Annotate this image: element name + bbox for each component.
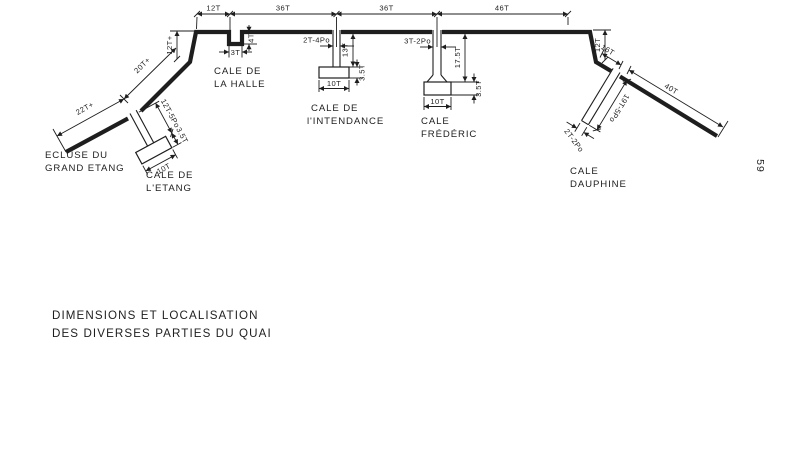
page-number: 59	[754, 159, 766, 173]
label-cale-frederic-line1: CALE	[421, 116, 450, 127]
dim-label-top-36t-b: 36T	[379, 4, 393, 13]
drawing-title-line1: DIMENSIONS ET LOCALISATION	[52, 309, 259, 322]
dim-label-intendance-base-height: 3.5T	[358, 64, 367, 81]
label-cale-intendance-line1: CALE DE	[311, 103, 358, 114]
label-cale-frederic-line2: FRÉDÉRIC	[421, 129, 477, 140]
dim-label-frederic-base-width: 10T	[430, 97, 444, 106]
label-cale-halle-line2: LA HALLE	[214, 79, 265, 90]
left-quay-dimensions: 12T+ 20T+ 22T+	[53, 31, 194, 152]
halle-notch-dimensions: 3T 4T	[219, 25, 257, 58]
pier-base	[319, 67, 349, 78]
label-cale-dauphine-line2: DAUPHINE	[570, 179, 627, 190]
pier-cale-de-lintendance: 2T-4Po 13T 3.5T 10T	[303, 30, 366, 92]
label-cale-halle-line1: CALE DE	[214, 66, 261, 77]
dim-label-left-20t: 20T+	[132, 55, 152, 75]
dim-label-frederic-base-height: 3.5T	[474, 80, 483, 97]
dim-label-notch-depth: 4T	[247, 33, 256, 43]
dim-label-top-46t: 46T	[495, 4, 509, 13]
dim-label-frederic-length: 17.5T	[453, 47, 462, 68]
dim-label-dauphine-width: 2T-2Po	[562, 127, 585, 154]
label-cale-etang-line1: CALE DE	[146, 170, 193, 181]
pier-base	[424, 82, 451, 95]
label-cale-etang-line2: L'ETANG	[146, 183, 192, 194]
dim-label-right-16t: 16T	[599, 42, 616, 57]
dim-label-right-40t: 40T	[663, 81, 680, 96]
label-ecluse-line2: GRAND ETANG	[45, 163, 125, 174]
drawing-title-line2: DES DIVERSES PARTIES DU QUAI	[52, 327, 272, 340]
pier-cale-de-letang: 12T-5Po 3.5T 10T	[118, 95, 198, 181]
quay-segment-ecluse	[66, 119, 128, 153]
pier-wall	[136, 110, 154, 143]
dim-label-top-12t: 12T	[206, 4, 220, 13]
quay-segment-top-right	[442, 32, 611, 71]
dim-label-left-22t: 22T+	[74, 100, 95, 117]
label-ecluse-line1: ECLUSE DU	[45, 150, 108, 161]
dim-label-etang-length: 12T-5Po	[159, 97, 182, 129]
dim-label-frederic-width: 3T-2Po	[404, 37, 431, 46]
dim-label-intendance-width: 2T-4Po	[303, 36, 330, 45]
label-cale-dauphine-line1: CALE	[570, 166, 599, 177]
pier-wall	[582, 68, 614, 120]
drawing-page: 12T 36T 36T 46T 3T 4T 12T+ 20T+ 22T+	[0, 0, 793, 475]
dim-label-top-36t-a: 36T	[276, 4, 290, 13]
label-cale-intendance-line2: l'INTENDANCE	[307, 116, 384, 127]
pier-wall	[130, 114, 148, 147]
pier-cale-frederic: 3T-2Po 17.5T 3.5T 10T	[404, 30, 483, 110]
title-block: DIMENSIONS ET LOCALISATION DES DIVERSES …	[52, 309, 272, 340]
dim-label-intendance-base-width: 10T	[327, 79, 341, 88]
dim-label-intendance-length: 13T	[341, 43, 350, 57]
dim-label-dauphine-length: 19T-5Po	[607, 93, 631, 125]
quay-plan-drawing: 12T 36T 36T 46T 3T 4T 12T+ 20T+ 22T+	[0, 0, 793, 475]
dim-label-notch-width: 3T	[231, 48, 241, 57]
